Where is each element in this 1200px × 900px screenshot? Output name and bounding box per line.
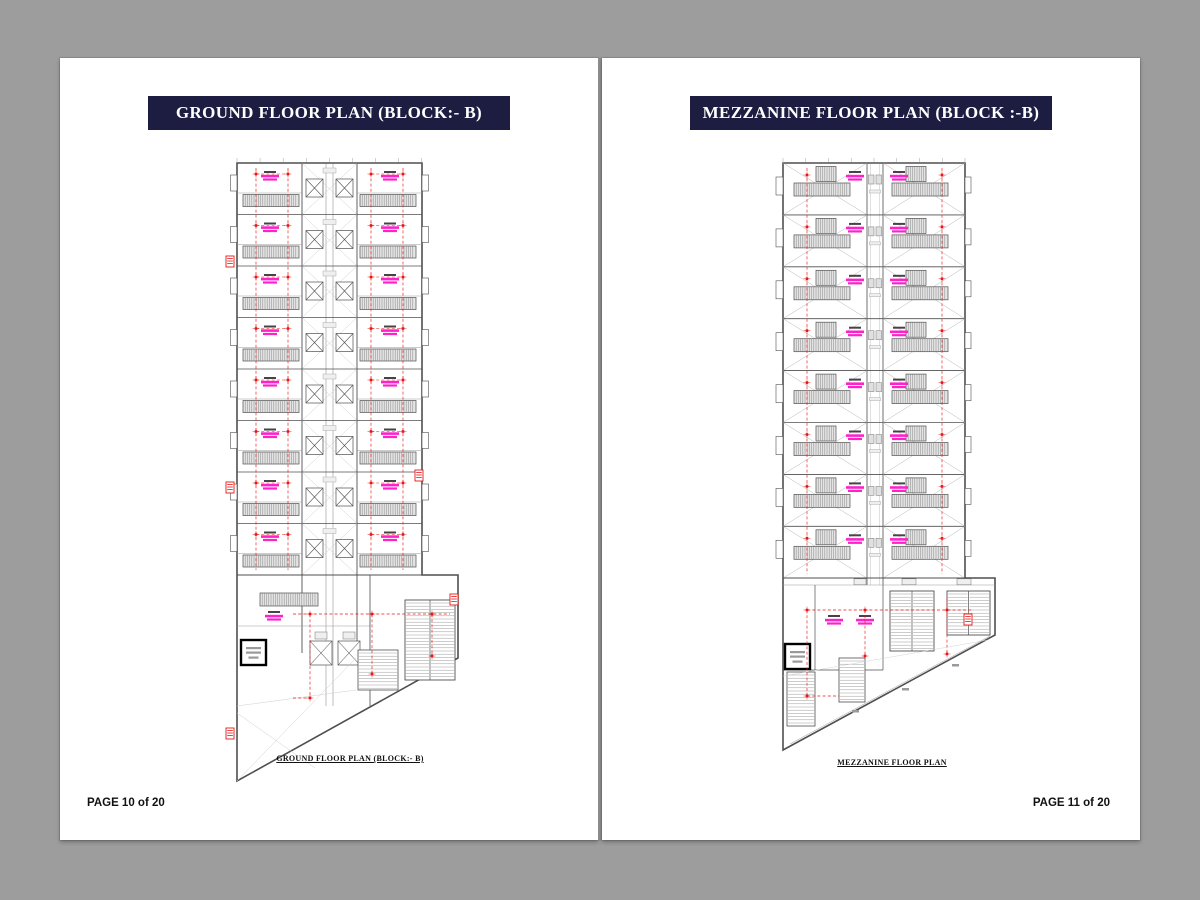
page-number: PAGE 10 of 20 — [87, 797, 165, 809]
document-spread: GROUND FLOOR PLAN (BLOCK:- B) GROUND FLO… — [0, 0, 1200, 900]
ground-floor-plan-drawing — [60, 58, 598, 840]
plan-caption: GROUND FLOOR PLAN (BLOCK:- B) — [200, 754, 500, 763]
page-left: GROUND FLOOR PLAN (BLOCK:- B) GROUND FLO… — [60, 58, 598, 840]
page-number: PAGE 11 of 20 — [1033, 797, 1110, 809]
mezzanine-floor-plan-drawing — [602, 58, 1140, 840]
page-right: MEZZANINE FLOOR PLAN (BLOCK :-B) MEZZANI… — [602, 58, 1140, 840]
ground-floor-plan-svg — [60, 58, 598, 840]
mezzanine-floor-plan-svg — [602, 58, 1140, 840]
plan-caption: MEZZANINE FLOOR PLAN — [742, 758, 1042, 767]
